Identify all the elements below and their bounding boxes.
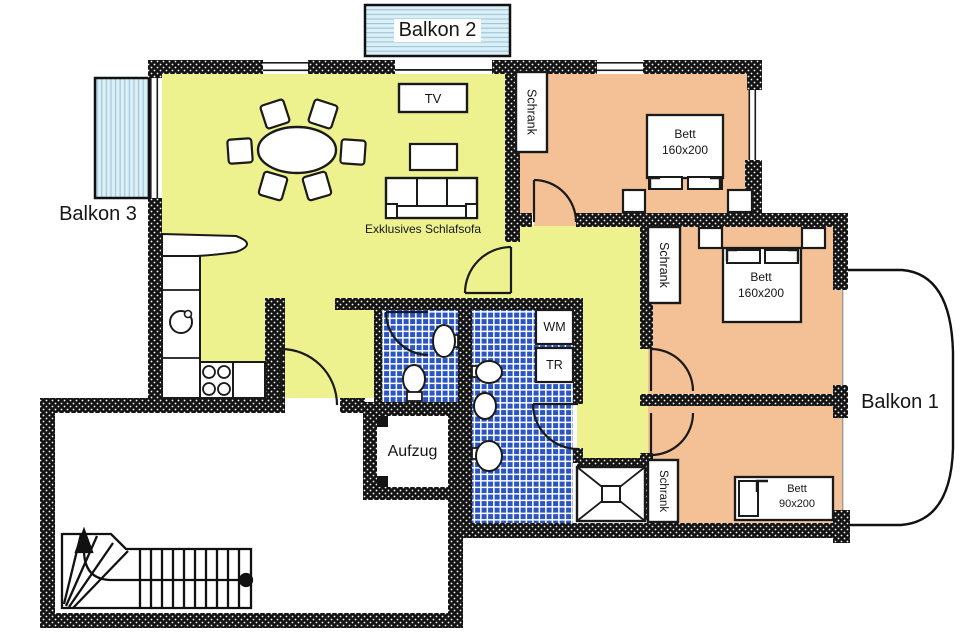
sofa [386, 178, 477, 218]
bed3 [735, 477, 833, 520]
bathroom-basin [476, 361, 502, 383]
bed2-pillow [765, 250, 798, 263]
elevator-door-jamb-bottom [377, 476, 388, 487]
bathroom-bidet [476, 441, 502, 471]
wardrobe-bedroom2 [648, 227, 680, 303]
balcony1-door-bedroom2 [842, 290, 843, 385]
staircase [62, 530, 252, 608]
bed3-pillow [739, 481, 758, 516]
kitchen-bar-counter [162, 234, 247, 257]
nightstand [623, 190, 645, 212]
bedroom1-door-gap-floor [534, 213, 576, 226]
washing-machine-box [536, 310, 573, 344]
dining-chair [302, 171, 332, 201]
corridor-floor [577, 310, 648, 458]
shower-drain [602, 486, 620, 502]
wc-toilet [403, 365, 425, 393]
balcony1-door-bedroom3 [842, 418, 843, 510]
balcony1-outline [848, 270, 953, 525]
balcony2-deck [365, 5, 510, 56]
bathroom-toilet [474, 393, 496, 419]
dining-chair [227, 138, 253, 164]
balcony2-door [395, 69, 492, 71]
nightstand [699, 228, 722, 248]
floorplan-page: Balkon 2 Balkon 3 Balkon 1 TV Exklusives… [0, 0, 960, 633]
bed1-mattress [647, 115, 723, 178]
corridor-door-gap-floor [505, 242, 520, 298]
dining-table [258, 127, 336, 173]
wc-basin [433, 325, 455, 357]
dryer-box [536, 348, 573, 382]
floorplan-drawing [0, 0, 960, 633]
bed2-pillow [727, 250, 760, 263]
kitchen-counter-2 [233, 362, 265, 398]
stairs-walkline-end [240, 574, 252, 586]
dining-chair [258, 171, 288, 201]
elevator-door-jamb-top [377, 416, 388, 427]
tv-board [399, 84, 467, 112]
wardrobe-bedroom1 [516, 72, 547, 152]
balcony3-door [150, 78, 152, 198]
dining-chair [340, 139, 366, 165]
corridor-top-floor [520, 225, 640, 310]
coffee-table [410, 144, 457, 170]
wardrobe-bedroom3 [648, 460, 678, 522]
nightstand [802, 228, 825, 248]
nightstand [728, 190, 752, 212]
balcony3-deck [95, 78, 149, 198]
